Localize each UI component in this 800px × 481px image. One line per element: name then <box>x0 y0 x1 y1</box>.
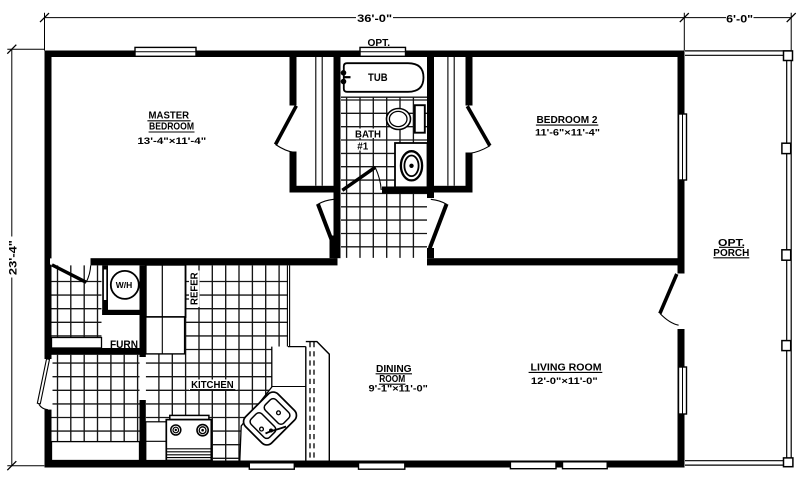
svg-text:REFER: REFER <box>190 272 201 305</box>
svg-text:FURN: FURN <box>110 339 138 351</box>
svg-text:6'-0": 6'-0" <box>726 13 753 25</box>
svg-text:12'-0"×11'-0": 12'-0"×11'-0" <box>531 375 598 386</box>
svg-text:BEDROOM: BEDROOM <box>149 122 194 133</box>
svg-text:OPT.: OPT. <box>368 38 391 49</box>
svg-text:BEDROOM 2: BEDROOM 2 <box>537 115 599 126</box>
svg-text:MASTER: MASTER <box>149 111 190 122</box>
svg-text:11'-6"×11'-4": 11'-6"×11'-4" <box>535 126 600 137</box>
svg-text:13'-4"×11'-4": 13'-4"×11'-4" <box>137 135 206 146</box>
svg-text:LIVING ROOM: LIVING ROOM <box>531 362 602 373</box>
svg-text:TUB: TUB <box>368 72 388 84</box>
svg-text:36'-0": 36'-0" <box>357 13 392 25</box>
svg-text:BATH: BATH <box>355 129 381 140</box>
svg-text:W/H: W/H <box>116 280 133 290</box>
svg-text:23'-4": 23'-4" <box>7 240 19 275</box>
svg-text:9'-1"×11'-0": 9'-1"×11'-0" <box>369 383 428 394</box>
svg-text:#1: #1 <box>357 142 368 153</box>
